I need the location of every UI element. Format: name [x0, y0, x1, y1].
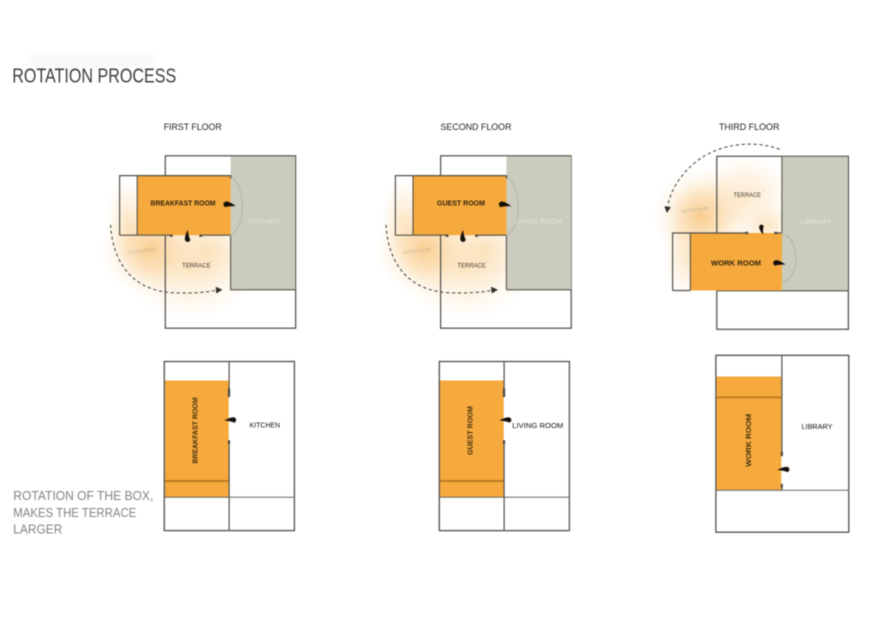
svg-text:FIRST FLOOR: FIRST FLOOR: [164, 122, 222, 132]
svg-text:THIRD FLOOR: THIRD FLOOR: [719, 122, 780, 132]
svg-text:LIVING ROOM: LIVING ROOM: [512, 421, 563, 430]
svg-text:WORK ROOM: WORK ROOM: [744, 414, 753, 467]
svg-text:KITCHEN: KITCHEN: [249, 219, 280, 226]
svg-text:GUEST ROOM: GUEST ROOM: [437, 199, 485, 208]
svg-text:BREAKFAST ROOM: BREAKFAST ROOM: [190, 397, 199, 463]
svg-text:LIVING ROOM: LIVING ROOM: [514, 219, 562, 226]
svg-text:ROTATION PROCESS: ROTATION PROCESS: [12, 65, 176, 88]
svg-text:TERRACE: TERRACE: [457, 263, 486, 270]
svg-text:ROTATION OF THE BOX,: ROTATION OF THE BOX,: [13, 488, 153, 503]
svg-text:LIBRARY: LIBRARY: [802, 422, 833, 431]
svg-text:LIBRARY: LIBRARY: [800, 219, 833, 226]
svg-text:LARGER: LARGER: [13, 522, 62, 537]
svg-text:TERRACE: TERRACE: [733, 192, 761, 199]
svg-text:MAKES THE TERRACE: MAKES THE TERRACE: [13, 505, 136, 520]
svg-text:WORK ROOM: WORK ROOM: [711, 258, 761, 267]
svg-text:SECOND FLOOR: SECOND FLOOR: [441, 122, 512, 132]
svg-text:KITCHEN: KITCHEN: [250, 421, 281, 430]
svg-text:GUEST ROOM: GUEST ROOM: [465, 406, 474, 455]
svg-text:BREAKFAST ROOM: BREAKFAST ROOM: [151, 199, 216, 208]
svg-text:TERRACE: TERRACE: [182, 263, 211, 270]
